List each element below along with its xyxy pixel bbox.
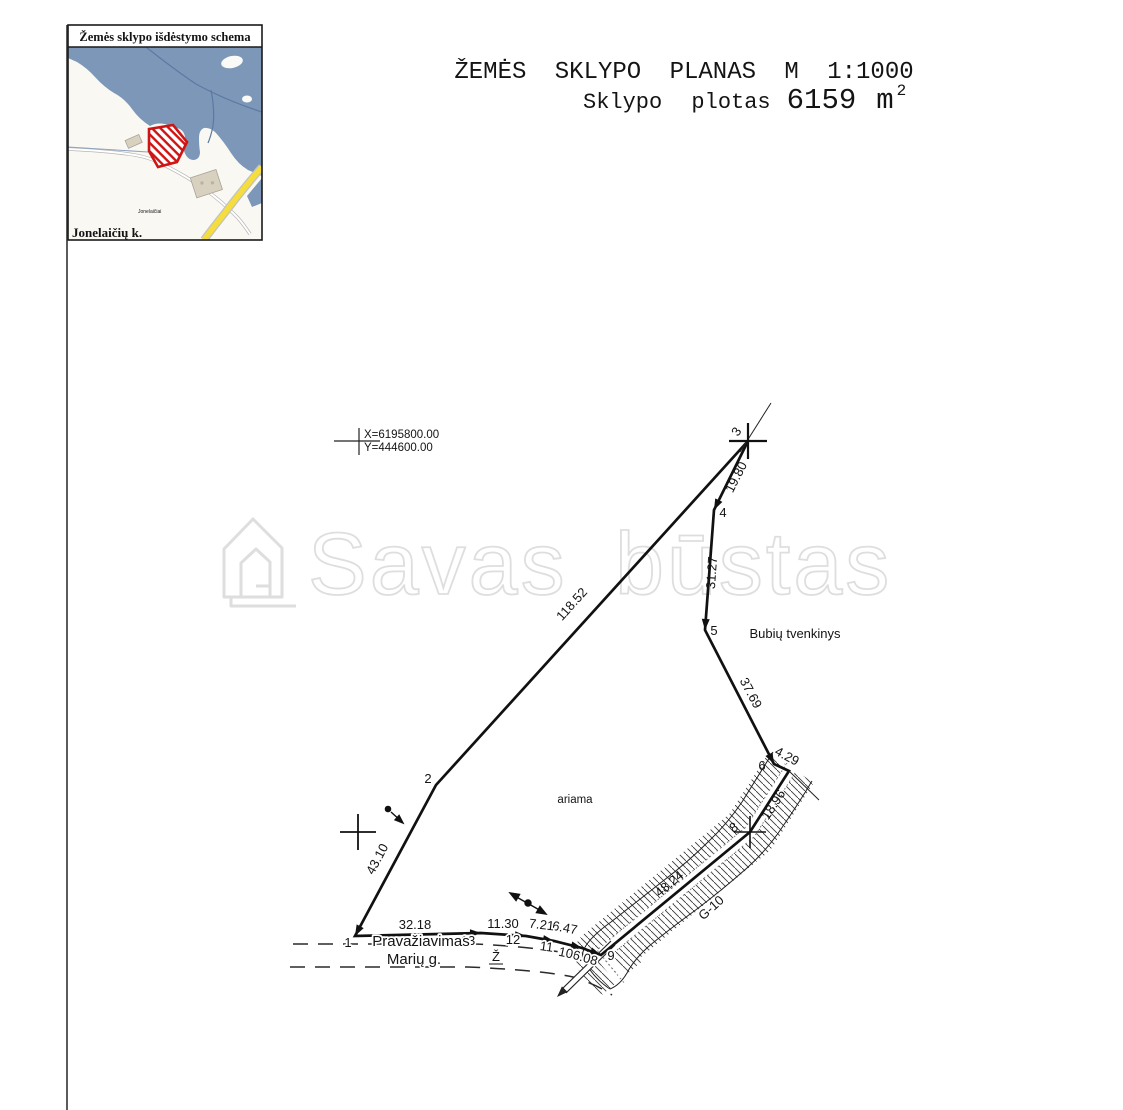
inset-map: Jonelaičiai Žemės sklypo išdėstymo schem…	[68, 25, 262, 240]
edge-length-label: 7.21	[528, 916, 555, 934]
street-label: Marių g.	[387, 951, 441, 968]
vertex-number: 12	[506, 932, 520, 947]
edge-length-label: 6.47	[551, 918, 579, 938]
vertex-number: 10	[557, 944, 574, 962]
vertex-number: 4	[719, 505, 726, 520]
double-arrow-symbol	[508, 890, 548, 917]
inset-place-label: Jonelaičiai	[138, 209, 161, 215]
area-unit: m	[876, 84, 893, 117]
edge-length-label: 32.18	[399, 917, 432, 932]
vertex-number: 5	[710, 623, 717, 638]
construction-line-v3	[740, 403, 771, 452]
coordinate-x-label: X=6195800.00	[364, 429, 439, 441]
pond-label: Bubių tvenkinys	[749, 626, 841, 641]
area-value: 6159	[787, 84, 857, 117]
inset-map-title: Žemės sklypo išdėstymo schema	[79, 30, 251, 44]
point-arrow-symbol	[385, 806, 405, 825]
watermark: Savas būstas	[224, 514, 892, 613]
passage-label: Pravažiavimas	[372, 933, 470, 950]
watermark-house-icon	[224, 519, 296, 606]
vertex-number: 2	[424, 771, 431, 786]
inset-island-2	[242, 96, 252, 103]
watermark-text: Savas būstas	[308, 514, 892, 613]
main-plan: 43.10 118.52 19.80 31.27 37.69 4.29 18.9…	[290, 403, 841, 1000]
header: ŽEMĖS SKLYPO PLANAS M 1:1000 Sklypo plot…	[454, 58, 913, 117]
edge-length-label: 37.69	[737, 675, 766, 711]
edge-length-label: 31.27	[703, 556, 720, 590]
page-title: ŽEMĖS SKLYPO PLANAS M 1:1000	[454, 58, 913, 86]
inset-village-label: Jonelaičių k.	[72, 225, 142, 240]
edge-length-label: 43.10	[363, 841, 392, 877]
vertex-number: 11	[539, 938, 554, 955]
vertex-number: 3	[728, 424, 744, 439]
cross-grid-west	[340, 814, 376, 850]
plan-sheet: Jonelaičiai Žemės sklypo išdėstymo schem…	[0, 0, 1123, 1110]
page-subtitle: Sklypo plotas6159m2	[583, 82, 906, 117]
area-prefix: Sklypo plotas	[583, 90, 771, 115]
vertex-number: 9	[607, 948, 614, 963]
vertex-number: 1	[344, 935, 351, 950]
coordinate-y-label: Y=444600.00	[364, 442, 433, 454]
edge-length-label: 11.30	[487, 916, 519, 931]
street-mark-label: Ž	[492, 949, 500, 964]
vertex-number: 6	[758, 758, 765, 773]
area-exponent: 2	[897, 82, 907, 100]
land-use-label: ariama	[557, 794, 593, 806]
